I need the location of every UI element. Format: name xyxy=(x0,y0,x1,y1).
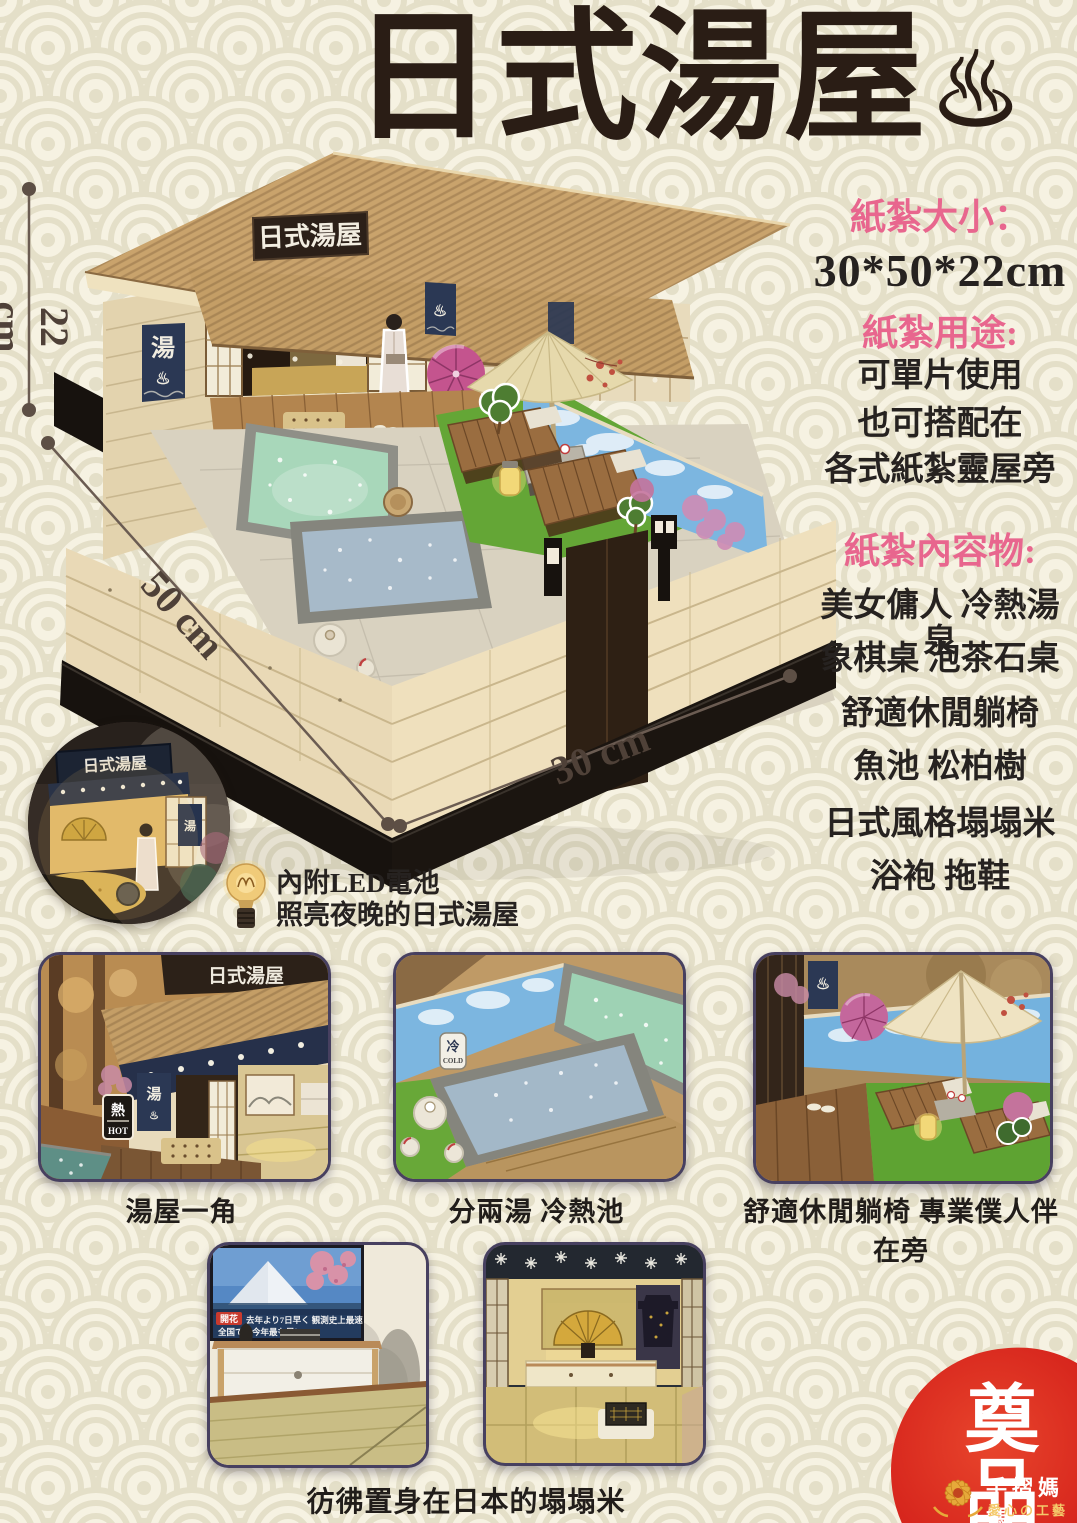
svg-text:HOT: HOT xyxy=(108,1126,128,1136)
photo-bathhouse-corner: 日式湯屋 湯 ♨ 熱 xyxy=(38,952,331,1182)
led-bulb-icon xyxy=(222,856,270,936)
svg-text:COLD: COLD xyxy=(443,1057,463,1065)
usage-line: 可單片使用 xyxy=(810,358,1070,394)
size-heading: 紙紮大小： xyxy=(810,198,1070,238)
tatami-room-scene xyxy=(486,1245,703,1463)
led-note-line2: 照亮夜晚的日式湯屋 xyxy=(276,893,519,932)
svg-text:♨: ♨ xyxy=(149,1110,159,1122)
svg-text:去年より7日早く 観測史上最速: 去年より7日早く 観測史上最速 xyxy=(246,1315,363,1325)
lotus-icon xyxy=(931,1466,985,1520)
bathhouse-signboard: 日式湯屋 xyxy=(253,212,368,260)
signboard-text: 日式湯屋 xyxy=(257,220,362,253)
svg-text:♨: ♨ xyxy=(155,369,170,388)
svg-text:♨: ♨ xyxy=(433,303,447,320)
svg-text:冷: 冷 xyxy=(446,1039,459,1054)
noren-banner-right: ♨ xyxy=(425,282,456,336)
usage-heading: 紙紮用途: xyxy=(810,314,1070,354)
poster-page: 日式湯屋 ♨ xyxy=(0,0,1077,1523)
svg-text:日式湯屋: 日式湯屋 xyxy=(208,964,284,987)
caption-photo1: 湯屋一角 xyxy=(38,1190,325,1229)
usage-line: 各式紙紮靈屋旁 xyxy=(810,452,1070,488)
svg-text:開花: 開花 xyxy=(220,1313,238,1324)
size-value: 30*50*22cm xyxy=(810,246,1070,297)
dim-height-label: 22 cm xyxy=(0,282,78,372)
svg-text:♨: ♨ xyxy=(816,976,830,993)
svg-text:湯: 湯 xyxy=(151,335,175,362)
brand-tagline: 愛心の工藝品 xyxy=(988,1500,1077,1523)
night-view-inset-photo: 日式湯屋 湯 xyxy=(28,722,230,924)
loungers-scene: ♨ xyxy=(756,955,1050,1181)
caption-photo2: 分兩湯 冷熱池 xyxy=(393,1190,680,1229)
contents-line: 日式風格塌塌米 xyxy=(810,806,1070,842)
contents-line: 魚池 松柏樹 xyxy=(810,749,1070,785)
bathhouse-corner-scene: 日式湯屋 湯 ♨ 熱 xyxy=(41,955,328,1179)
contents-line: 象棋桌 泡茶石桌 xyxy=(810,641,1070,677)
onsen-symbol-icon: ♨ xyxy=(930,41,1021,151)
photo-two-pools: 冷 COLD xyxy=(393,952,686,1182)
photo-tatami-room xyxy=(483,1242,706,1466)
wooden-bucket xyxy=(384,488,412,516)
title-text: 日式湯屋 xyxy=(352,6,928,151)
noren-banner-left: 湯 ♨ xyxy=(142,323,185,402)
contents-heading: 紙紮內容物: xyxy=(810,532,1070,572)
contents-line: 舒適休閒躺椅 xyxy=(810,696,1070,732)
photo-fuji-tv-room: 開花 去年より7日早く 観測史上最速 全国でも今年最も早い xyxy=(207,1242,429,1468)
two-pools-scene: 冷 COLD xyxy=(396,955,683,1179)
contents-line: 浴袍 拖鞋 xyxy=(810,859,1070,895)
svg-text:湯: 湯 xyxy=(146,1086,161,1103)
fuji-tv-scene: 開花 去年より7日早く 観測史上最速 全国でも今年最も早い xyxy=(210,1245,426,1465)
caption-photo3: 舒適休閒躺椅 專業僕人伴在旁 xyxy=(731,1190,1071,1268)
photo-loungers: ♨ xyxy=(753,952,1053,1184)
usage-line: 也可搭配在 xyxy=(810,406,1070,442)
svg-text:熱: 熱 xyxy=(111,1102,125,1119)
caption-row2: 彷彿置身在日本的塌塌米 xyxy=(246,1480,686,1520)
cold-pool xyxy=(290,510,492,624)
page-title: 日式湯屋 ♨ xyxy=(352,6,1021,151)
night-scene: 日式湯屋 湯 xyxy=(28,722,230,924)
